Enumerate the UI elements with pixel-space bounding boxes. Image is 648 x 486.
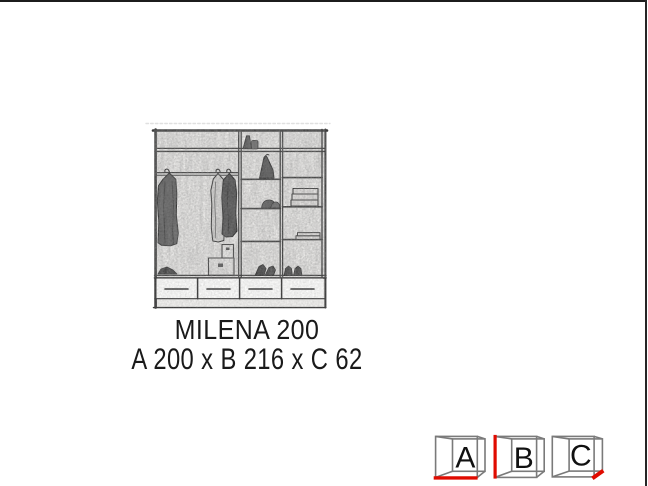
svg-text:A: A <box>455 442 475 475</box>
svg-text:C: C <box>570 439 592 472</box>
svg-text:B: B <box>514 442 534 475</box>
